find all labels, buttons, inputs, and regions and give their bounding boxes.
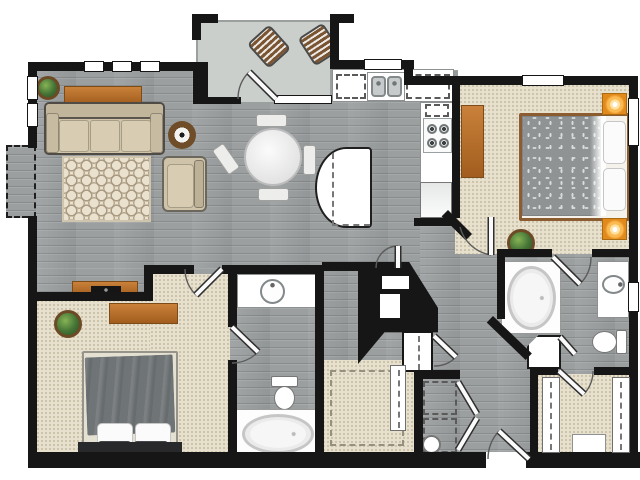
bedroom2-plant: [54, 310, 82, 338]
wall-master-south-b: [592, 249, 638, 257]
den-bumpout: [6, 145, 36, 218]
bedroom2-dresser: [109, 303, 178, 324]
bath2-toilet: [270, 374, 300, 412]
sofa-cushion: [90, 120, 120, 152]
master-dresser: [461, 105, 484, 178]
dining-table: [244, 128, 302, 186]
armchair-seat: [167, 164, 194, 208]
sink-basin-left: [371, 76, 386, 97]
wall-tub-left: [497, 257, 505, 319]
window-left-1: [27, 76, 38, 100]
master-sink: [602, 275, 625, 294]
wall-bath2-west-a: [228, 274, 237, 327]
entry-threshold: [486, 452, 526, 468]
wall-core-top: [322, 262, 362, 271]
upper-cabinets-right: [425, 104, 449, 117]
stove: [423, 118, 452, 153]
bath2-tub-inner: [250, 420, 306, 448]
closet-dash: [418, 336, 420, 370]
sink-basin-right: [387, 76, 402, 97]
shelf-dash: [620, 382, 622, 450]
area-rug: [62, 156, 151, 222]
wall-bottom: [28, 452, 640, 468]
nightstand-lamp-2: [602, 218, 627, 240]
closet2-shelf-left: [542, 377, 560, 453]
master-bed: [519, 113, 630, 221]
linen-closet-a: [380, 274, 411, 291]
washer: [423, 418, 457, 453]
side-table: [168, 121, 196, 149]
island-dash: [332, 224, 370, 226]
living-plant: [36, 76, 60, 100]
wall-bath2-west-b: [228, 360, 237, 456]
bath2-vanity: [237, 274, 317, 308]
bath2-sink: [260, 279, 285, 304]
shelf-dash: [398, 370, 400, 428]
shelf-dash: [550, 382, 552, 450]
sofa-arm-left: [46, 113, 59, 153]
window-right-2: [628, 282, 639, 312]
kitchen-island: [315, 147, 372, 228]
closet2-shelf-right: [612, 377, 630, 453]
patio-sill-wall: [193, 97, 241, 104]
master-vanity: [597, 261, 629, 318]
linen-closet-b: [378, 292, 402, 320]
burner: [439, 138, 449, 148]
sofa-back: [46, 104, 163, 119]
patio-bracket-v-left: [192, 14, 201, 40]
island-dash: [332, 153, 334, 226]
wall-nook-a: [150, 265, 194, 274]
patio-bracket-v-right: [330, 14, 339, 62]
closet1-shelf: [390, 365, 406, 431]
armchair: [162, 156, 207, 212]
sofa: [44, 102, 165, 155]
lamp-glow: [605, 220, 625, 239]
window-top-2: [112, 61, 132, 72]
lamp-glow: [605, 95, 625, 114]
master-toilet: [590, 328, 629, 356]
nightstand-lamp-1: [602, 93, 627, 115]
toilet-bowl: [592, 331, 617, 353]
toilet-bowl: [274, 386, 295, 410]
wall-bath2-east: [315, 265, 324, 460]
window-top-3: [140, 61, 160, 72]
sofa-arm-right: [150, 113, 163, 153]
kitchen-sink: [367, 72, 405, 101]
master-pillow: [603, 168, 626, 211]
wall-bedroom2-north: [36, 292, 152, 301]
burner: [439, 124, 449, 134]
wall-left-bottom: [28, 216, 37, 462]
window-master: [522, 75, 564, 86]
wall-master-south-a: [497, 249, 552, 257]
dining-chair-right: [303, 145, 316, 175]
dishwasher: [336, 74, 366, 99]
window-kitchen: [364, 59, 402, 70]
armchair-back: [194, 160, 204, 208]
window-right-1: [628, 98, 639, 146]
sofa-cushion: [121, 120, 151, 152]
burner: [427, 138, 437, 148]
floorplan: [0, 0, 640, 480]
sofa-cushion: [59, 120, 89, 152]
wall-bath2-north: [236, 265, 322, 274]
wall-master-west: [452, 84, 460, 218]
bath2-tub-surround: [236, 409, 319, 458]
dining-chair-bottom: [258, 188, 289, 201]
master-tub-inner: [513, 273, 550, 323]
window-top-1: [84, 61, 104, 72]
wall-bath-south-b: [594, 367, 638, 375]
dryer: [423, 381, 457, 415]
toilet-tank: [616, 330, 627, 354]
coat-closet: [402, 331, 433, 372]
burner: [427, 124, 437, 134]
wall-closet2-west: [530, 375, 538, 455]
patio-slider-window: [274, 95, 332, 104]
master-pillow: [603, 121, 626, 164]
wall-laundry-west: [414, 370, 423, 456]
wall-bath-south-a: [530, 367, 558, 375]
master-tub-surround: [501, 261, 561, 334]
window-left-2: [27, 103, 38, 127]
dining-chair-top: [256, 114, 287, 127]
